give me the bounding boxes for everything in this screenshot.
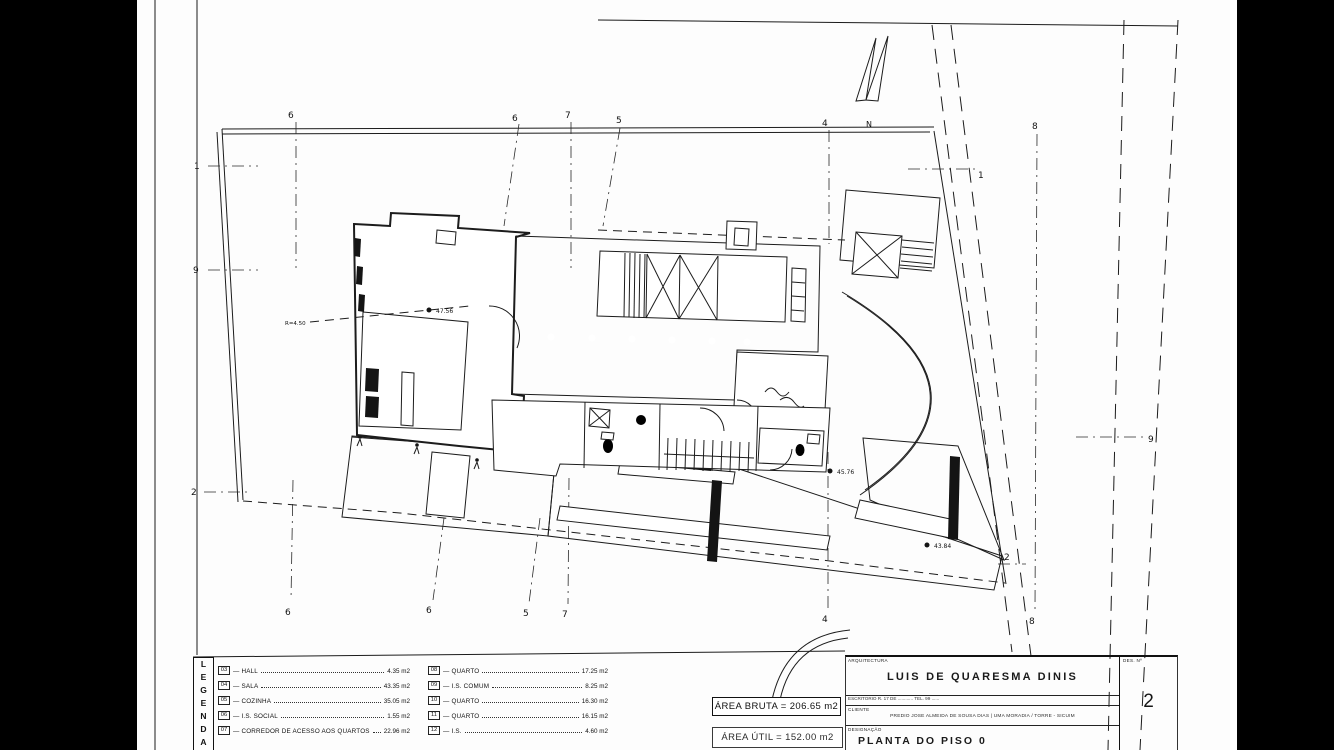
legend-item-area: 17.25 m2 xyxy=(582,668,608,675)
area-bruta-text: ÁREA BRUTA = 206.65 m2 xyxy=(715,701,838,712)
legend-item-label: CORREDOR DE ACESSO AOS QUARTOS xyxy=(241,728,369,735)
legend-column-2: 08— QUARTO17.25 m2 09— I.S. COMUM8.25 m2… xyxy=(428,660,608,735)
legend-item-number: 08 xyxy=(428,666,440,675)
axis-label: 6 xyxy=(285,608,291,618)
legend-item: 06— I.S. SOCIAL1.55 m2 xyxy=(218,705,410,720)
legend-title-box: LEGENDA xyxy=(193,657,214,750)
legend-item-number: 05 xyxy=(218,696,230,705)
legend-leader xyxy=(261,687,380,688)
scanned-plan-sheet: 6 6 7 5 4 8 1 9 2 1 9 2 6 6 5 7 4 8 N xyxy=(0,0,1334,750)
legend-leader xyxy=(274,702,381,703)
legend-item-area: 4.35 m2 xyxy=(387,668,410,675)
designation-row: DESIGNAÇÃO PLANTA DO PISO 0 xyxy=(846,726,1119,750)
legend-item-label: I.S. SOCIAL xyxy=(241,713,278,720)
legend-item-label: I.S. xyxy=(451,728,461,735)
axis-label: 8 xyxy=(1029,617,1035,627)
legend-item-label: QUARTO xyxy=(451,713,479,720)
legend-item-name: — xyxy=(233,683,241,690)
legend-item: 09— I.S. COMUM8.25 m2 xyxy=(428,675,608,690)
axis-label: 6 xyxy=(512,114,518,124)
legend-leader xyxy=(482,672,578,673)
legend-item-label: QUARTO xyxy=(451,698,479,705)
legend-item-area: 43.35 m2 xyxy=(384,683,410,690)
title-block-main: ARQUITECTURA LUIS DE QUARESMA DINIS ESCR… xyxy=(846,657,1120,750)
legend-item-number: 10 xyxy=(428,696,440,705)
architect-name: LUIS DE QUARESMA DINIS xyxy=(846,671,1119,683)
legend-item-number: 06 xyxy=(218,711,230,720)
title-block: ARQUITECTURA LUIS DE QUARESMA DINIS ESCR… xyxy=(845,655,1178,750)
level-mark: 43.84 xyxy=(934,543,951,550)
legend-leader xyxy=(281,717,384,718)
legend-item-number: 11 xyxy=(428,711,440,720)
axis-label: 4 xyxy=(822,119,828,129)
legend-item: 04— SALA43.35 m2 xyxy=(218,675,410,690)
legend-item-number: 12 xyxy=(428,726,440,735)
sheet-frame xyxy=(137,0,1237,750)
legend-item-number: 07 xyxy=(218,726,230,735)
discipline-label: ARQUITECTURA xyxy=(848,658,888,663)
legend-item-name: — xyxy=(443,728,451,735)
legend-item-name: — xyxy=(443,683,451,690)
legend-item: 11— QUARTO16.15 m2 xyxy=(428,705,608,720)
axis-label: 5 xyxy=(523,609,529,619)
legend-item-label: SALA xyxy=(241,683,258,690)
client-row: CLIENTE PREDIO JOSE ALMEIDA DE SOUSA DIA… xyxy=(846,706,1119,726)
axis-label: 7 xyxy=(565,111,571,121)
legend-column-1: 03— HALL4.35 m2 04— SALA43.35 m2 05— COZ… xyxy=(218,660,410,735)
legend-leader xyxy=(482,717,578,718)
legend-item-area: 4.60 m2 xyxy=(585,728,608,735)
legend-leader xyxy=(373,732,381,733)
client-line: PREDIO JOSE ALMEIDA DE SOUSA DIAS | UMA … xyxy=(846,714,1119,719)
legend-item-name: — xyxy=(443,668,451,675)
legend-item: 07— CORREDOR DE ACESSO AOS QUARTOS22.96 … xyxy=(218,720,410,735)
axis-label: 7 xyxy=(562,610,568,620)
legend-item: 12— I.S.4.60 m2 xyxy=(428,720,608,735)
axis-label: 6 xyxy=(288,111,294,121)
area-util-text: ÁREA ÚTIL = 152.00 m2 xyxy=(721,732,833,743)
level-mark: 47.56 xyxy=(436,308,453,315)
axis-label: 2 xyxy=(191,488,197,498)
designation-text: PLANTA DO PISO 0 xyxy=(858,735,1119,747)
area-bruta-box: ÁREA BRUTA = 206.65 m2 xyxy=(712,697,841,716)
legend-leader xyxy=(261,672,384,673)
title-block-discipline-row: ARQUITECTURA LUIS DE QUARESMA DINIS xyxy=(846,657,1119,696)
sheet-number: 2 xyxy=(1120,691,1177,713)
legend-item-area: 8.25 m2 xyxy=(585,683,608,690)
legend-item-name: — xyxy=(233,668,241,675)
level-mark: 45.76 xyxy=(837,469,854,476)
axis-label: 5 xyxy=(616,116,622,126)
legend-item-name: — xyxy=(233,698,241,705)
legend-item-area: 16.30 m2 xyxy=(582,698,608,705)
north-label: N xyxy=(866,120,872,129)
radius-note: R=4.50 xyxy=(285,321,306,327)
legend-item-label: I.S. COMUM xyxy=(451,683,489,690)
legend-item-name: — xyxy=(443,713,451,720)
legend-item-label: HALL xyxy=(241,668,258,675)
legend-leader xyxy=(482,702,578,703)
legend-item: 10— QUARTO16.30 m2 xyxy=(428,690,608,705)
legend-item-name: — xyxy=(233,713,241,720)
legend-item-area: 16.15 m2 xyxy=(582,713,608,720)
axis-label: 8 xyxy=(1032,122,1038,132)
legend-item: 08— QUARTO17.25 m2 xyxy=(428,660,608,675)
axis-label: 2 xyxy=(1004,553,1010,563)
legend-item-area: 22.96 m2 xyxy=(384,728,410,735)
legend-leader xyxy=(465,732,583,733)
axis-label: 1 xyxy=(978,171,984,181)
legend-item-name: — xyxy=(233,728,241,735)
legend-title: LEGENDA xyxy=(199,659,209,750)
legend-item-name: — xyxy=(443,698,451,705)
legend-item: 05— COZINHA35.05 m2 xyxy=(218,690,410,705)
sheet-number-label: DES. Nº xyxy=(1123,658,1142,663)
area-util-box: ÁREA ÚTIL = 152.00 m2 xyxy=(712,727,843,748)
legend-item-number: 09 xyxy=(428,681,440,690)
axis-label: 9 xyxy=(193,266,199,276)
axis-label: 4 xyxy=(822,615,828,625)
legend-item-label: QUARTO xyxy=(451,668,479,675)
designation-label: DESIGNAÇÃO xyxy=(848,727,882,732)
axis-label: 6 xyxy=(426,606,432,616)
legend-item: 03— HALL4.35 m2 xyxy=(218,660,410,675)
axis-label: 9 xyxy=(1148,435,1154,445)
axis-label: 1 xyxy=(194,162,200,172)
client-label: CLIENTE xyxy=(848,707,870,712)
legend-item-number: 03 xyxy=(218,666,230,675)
legend-leader xyxy=(492,687,582,688)
legend-item-label: COZINHA xyxy=(241,698,271,705)
floor-plan-drawing: 6 6 7 5 4 8 1 9 2 1 9 2 6 6 5 7 4 8 N xyxy=(0,0,1334,750)
sheet-number-cell: DES. Nº 2 xyxy=(1120,657,1177,750)
legend-item-area: 1.55 m2 xyxy=(387,713,410,720)
legend-item-number: 04 xyxy=(218,681,230,690)
legend-item-area: 35.05 m2 xyxy=(384,698,410,705)
office-line: ESCRITORIO R. 17 DE ............ TEL. 99… xyxy=(846,696,1119,706)
